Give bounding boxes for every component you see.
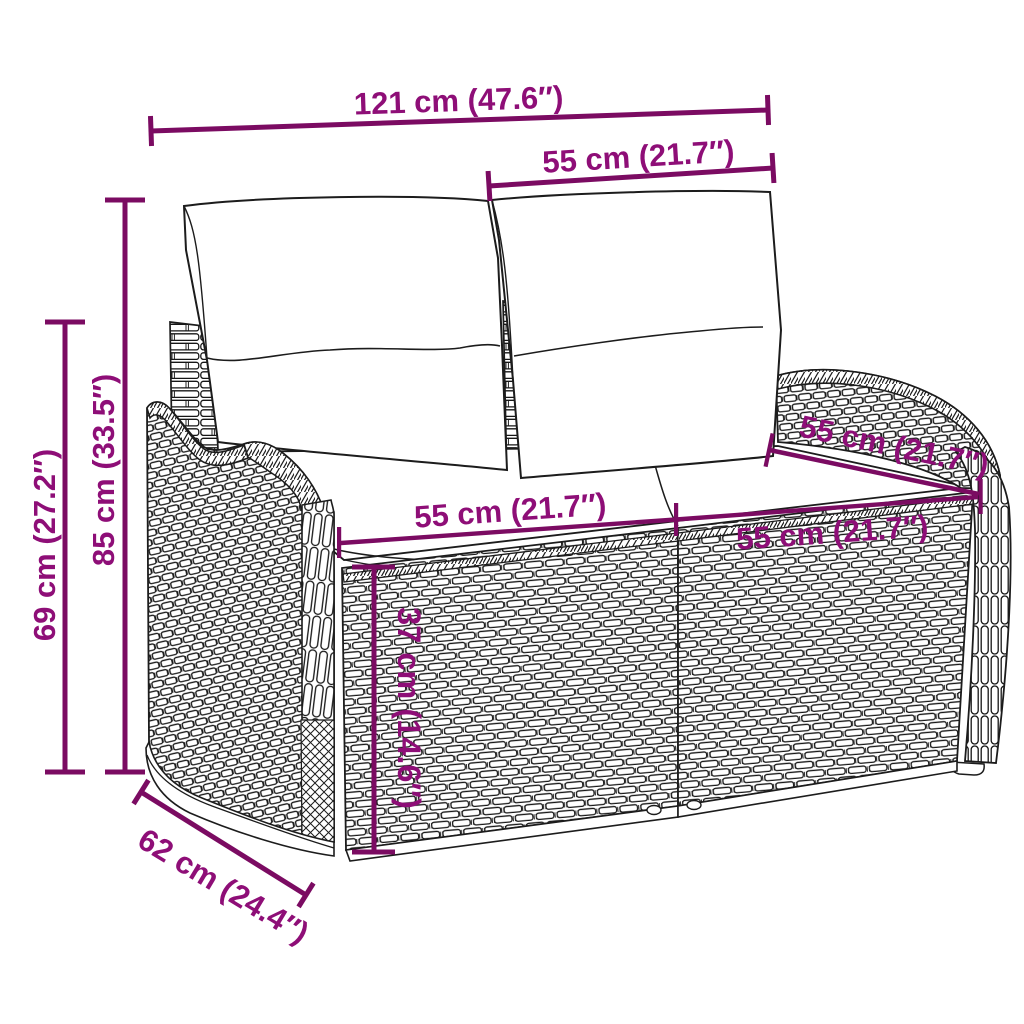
svg-text:85 cm (33.5″): 85 cm (33.5″)	[86, 374, 121, 566]
svg-text:121 cm (47.6″): 121 cm (47.6″)	[353, 79, 564, 121]
svg-text:69 cm (27.2″): 69 cm (27.2″)	[27, 449, 62, 641]
svg-text:37 cm (14.6″): 37 cm (14.6″)	[391, 607, 427, 809]
